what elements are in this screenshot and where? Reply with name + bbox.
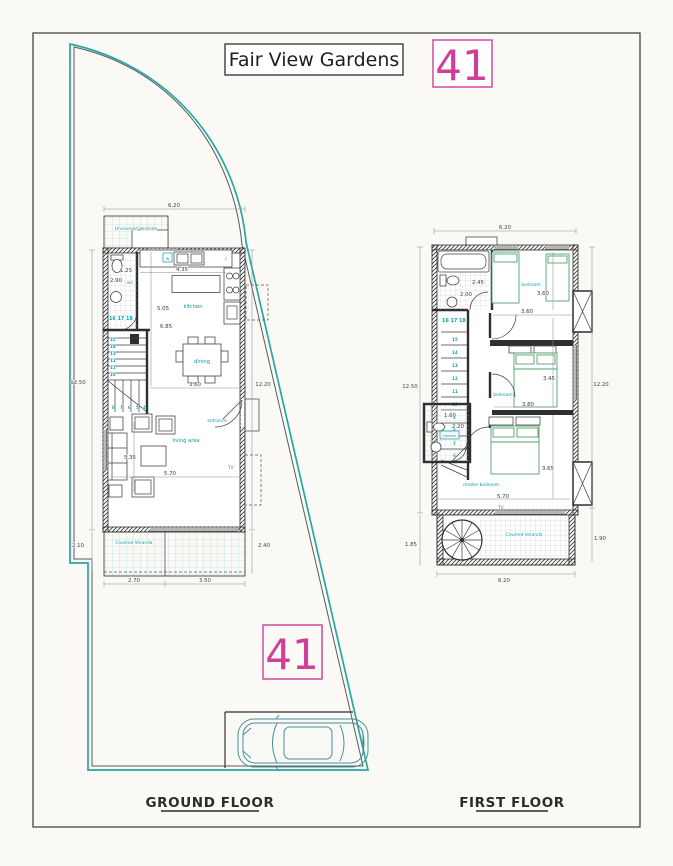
room-label-entrance: entrance bbox=[207, 418, 227, 424]
dim-bath-width: 2.45 bbox=[472, 280, 484, 286]
dim-wc-width: 1.25 bbox=[120, 268, 132, 274]
washbasin-icon bbox=[111, 292, 122, 303]
gf-stair-newel bbox=[130, 334, 139, 344]
ff-shower-room: 1.60 2.20 shower bbox=[424, 404, 470, 462]
stair-number: 10 bbox=[110, 372, 116, 377]
gf-dining: dining bbox=[176, 337, 228, 383]
dim-living-depth: 5.35 bbox=[124, 455, 136, 461]
dim-left-height: 12.50 bbox=[70, 380, 86, 386]
dim-bath-width2: 2.00 bbox=[460, 292, 473, 298]
gf-covered-veranda: Covered Veranda bbox=[104, 532, 245, 576]
washbasin-icon bbox=[447, 297, 457, 307]
dim-ff-bottom-width: 6.20 bbox=[498, 578, 511, 584]
ff-bedroom-divider bbox=[490, 340, 573, 346]
dim-right-offset: 2.40 bbox=[258, 543, 271, 549]
ground-floor-caption: GROUND FLOOR bbox=[145, 795, 274, 811]
ff-bathroom: 2.45 2.00 bbox=[437, 250, 492, 310]
dim-wc-depth: 2.90 bbox=[110, 278, 123, 284]
dim-master-width: 5.70 bbox=[497, 494, 510, 500]
stair-number: 7 bbox=[120, 405, 123, 410]
dim-bedroom-top-depth: 3.60 bbox=[537, 291, 550, 297]
ff-covered-veranda: Covered Veranda bbox=[437, 515, 575, 565]
oven bbox=[224, 302, 240, 324]
dim-ff-right-offset: 1.90 bbox=[594, 536, 607, 542]
room-label-covered-veranda-ff: Covered Veranda bbox=[506, 532, 543, 538]
room-label-master-bedroom: master bedroom bbox=[463, 482, 499, 488]
drawing-sheet: Fair View Gardens 41 41 Uncovered Verand… bbox=[0, 0, 673, 866]
dim-stair-width: 3.60 bbox=[189, 382, 202, 388]
ff-master-divider bbox=[492, 410, 573, 415]
dim-left-offset: 2.10 bbox=[72, 543, 85, 549]
toilet-icon bbox=[434, 423, 445, 431]
dim-interior-depth: 6.85 bbox=[160, 324, 172, 330]
title-box: Fair View Gardens bbox=[225, 44, 403, 75]
first-floor-caption: FIRST FLOOR bbox=[459, 795, 565, 811]
stair-number: 13 bbox=[110, 351, 116, 356]
side-table bbox=[109, 485, 122, 497]
dim-veranda-w2: 3.50 bbox=[199, 578, 212, 584]
room-label-tv: TV bbox=[227, 465, 234, 471]
plot-number-site: 41 bbox=[265, 630, 318, 679]
stair-number: 4 bbox=[143, 405, 146, 410]
dim-ff-left-offset: 1.85 bbox=[405, 542, 417, 548]
room-label-kitchen: kitchen bbox=[183, 304, 202, 310]
stair-number: 15 bbox=[110, 337, 116, 342]
dim-right-height: 12.20 bbox=[255, 382, 271, 388]
room-label-dining: dining bbox=[194, 359, 210, 365]
plot-number-top: 41 bbox=[435, 41, 488, 90]
gf-stair-run-label: 16 17 18 bbox=[109, 316, 133, 322]
stair-number: 13 bbox=[452, 363, 458, 368]
dim-ff-top-width: 6.20 bbox=[499, 225, 512, 231]
stair-number: 14 bbox=[110, 344, 116, 349]
dim-master-depth: 3.65 bbox=[542, 466, 554, 472]
room-label-living-area: living area bbox=[172, 438, 199, 444]
dim-shower-1: 1.60 bbox=[444, 413, 457, 419]
dim-bedroom-top-width: 3.60 bbox=[521, 309, 534, 315]
room-label-wc: wc bbox=[127, 281, 134, 286]
dim-living-width: 5.70 bbox=[164, 471, 177, 477]
stair-number: 11 bbox=[452, 389, 458, 394]
stair-number: 11 bbox=[110, 365, 116, 370]
plot-number-site-box: 41 bbox=[263, 625, 322, 679]
room-label-bedroom-mid: bedroom bbox=[493, 392, 512, 398]
washbasin-icon bbox=[431, 442, 441, 452]
toilet-icon bbox=[447, 276, 459, 285]
entry-porch bbox=[132, 230, 168, 248]
plot-number-top-box: 41 bbox=[433, 40, 492, 90]
dim-veranda-w1: 2.70 bbox=[128, 578, 141, 584]
stair-number: 6 bbox=[128, 405, 131, 410]
stair-number: 12 bbox=[452, 376, 458, 381]
kitchen-island bbox=[172, 276, 220, 293]
dim-bedroom-mid-width: 3.80 bbox=[522, 402, 535, 408]
room-label-bedroom-top: bedroom bbox=[521, 282, 540, 288]
spiral-stair-icon bbox=[442, 520, 482, 560]
room-label-tv-ff: TV bbox=[497, 505, 504, 511]
dim-ff-right-height: 12.20 bbox=[593, 382, 609, 388]
stair-number: 8 bbox=[112, 405, 115, 410]
stair-number: 15 bbox=[452, 337, 458, 342]
stair-number: 12 bbox=[110, 358, 116, 363]
coffee-table bbox=[141, 446, 166, 466]
stove bbox=[224, 268, 240, 300]
dim-hall-depth: 5.05 bbox=[157, 306, 169, 312]
dim-kitchen-width: 4.35 bbox=[176, 267, 188, 273]
ff-stair-run-label: 16 17 18 bbox=[442, 318, 466, 324]
dim-shower-2: 2.20 bbox=[452, 424, 465, 430]
stair-number: 14 bbox=[452, 350, 458, 355]
page-title: Fair View Gardens bbox=[229, 49, 400, 71]
dim-top-width: 6.20 bbox=[168, 203, 181, 209]
stair-number: 5 bbox=[136, 405, 139, 410]
dim-ff-left-height: 12.50 bbox=[402, 384, 418, 390]
side-table bbox=[110, 417, 123, 430]
room-label-covered-veranda: Covered Veranda bbox=[116, 540, 153, 546]
room-label-shower: shower bbox=[443, 433, 457, 438]
washer-label: w bbox=[166, 257, 170, 262]
floor-plan-canvas: Fair View Gardens 41 41 Uncovered Verand… bbox=[0, 0, 673, 866]
dim-bedroom-mid-depth: 3.45 bbox=[543, 376, 555, 382]
room-label-uncovered-veranda: Uncovered Veranda bbox=[115, 226, 158, 232]
